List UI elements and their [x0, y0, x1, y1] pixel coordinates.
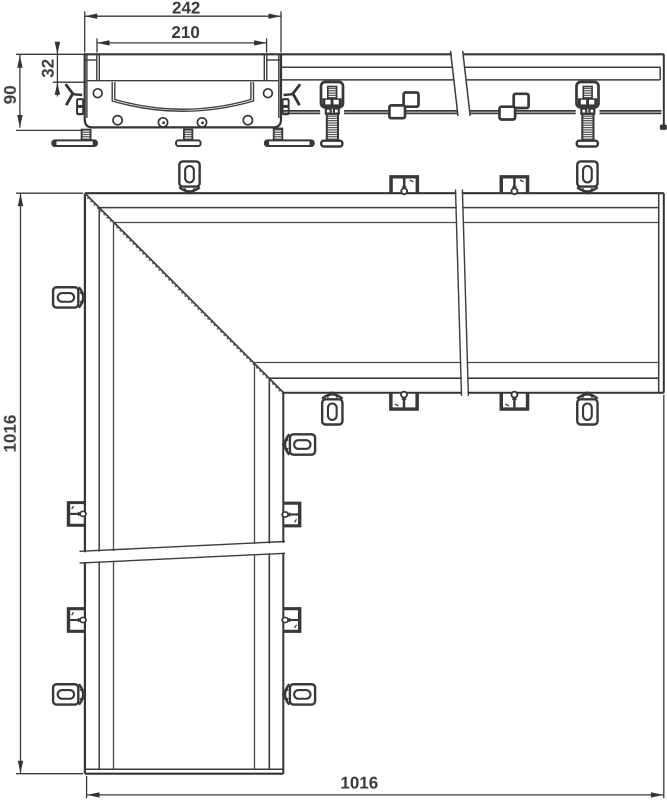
svg-text:242: 242	[172, 0, 200, 17]
svg-text:1016: 1016	[1, 415, 20, 453]
svg-text:32: 32	[39, 59, 58, 78]
svg-text:90: 90	[1, 85, 20, 104]
svg-text:1016: 1016	[340, 773, 378, 792]
svg-text:210: 210	[171, 23, 199, 42]
